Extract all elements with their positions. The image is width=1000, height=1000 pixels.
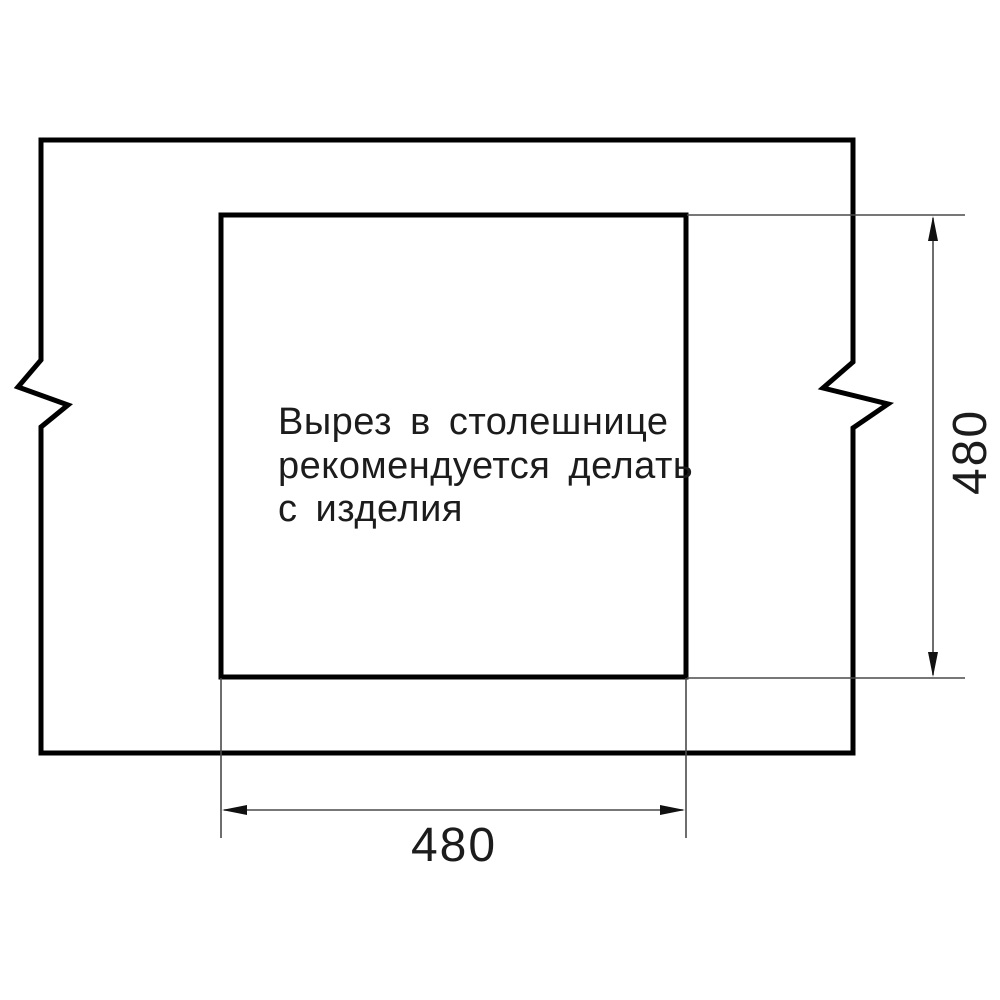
- note-line-1: Вырез в столешнице: [278, 401, 669, 443]
- cutout-note: Вырез в столешнице рекомендуется делать …: [278, 401, 693, 530]
- arrowhead-down-icon: [928, 652, 938, 677]
- drawing-svg: Вырез в столешнице рекомендуется делать …: [0, 0, 1000, 1000]
- arrowhead-left-icon: [222, 805, 247, 815]
- arrowhead-up-icon: [928, 216, 938, 241]
- arrowhead-right-icon: [660, 805, 685, 815]
- height-dimension-label: 480: [944, 409, 997, 495]
- technical-drawing-countertop-cutout: Вырез в столешнице рекомендуется делать …: [0, 0, 1000, 1000]
- note-line-2: рекомендуется делать: [278, 445, 693, 487]
- note-line-3: с изделия: [278, 488, 463, 530]
- width-dimension-label: 480: [411, 819, 497, 872]
